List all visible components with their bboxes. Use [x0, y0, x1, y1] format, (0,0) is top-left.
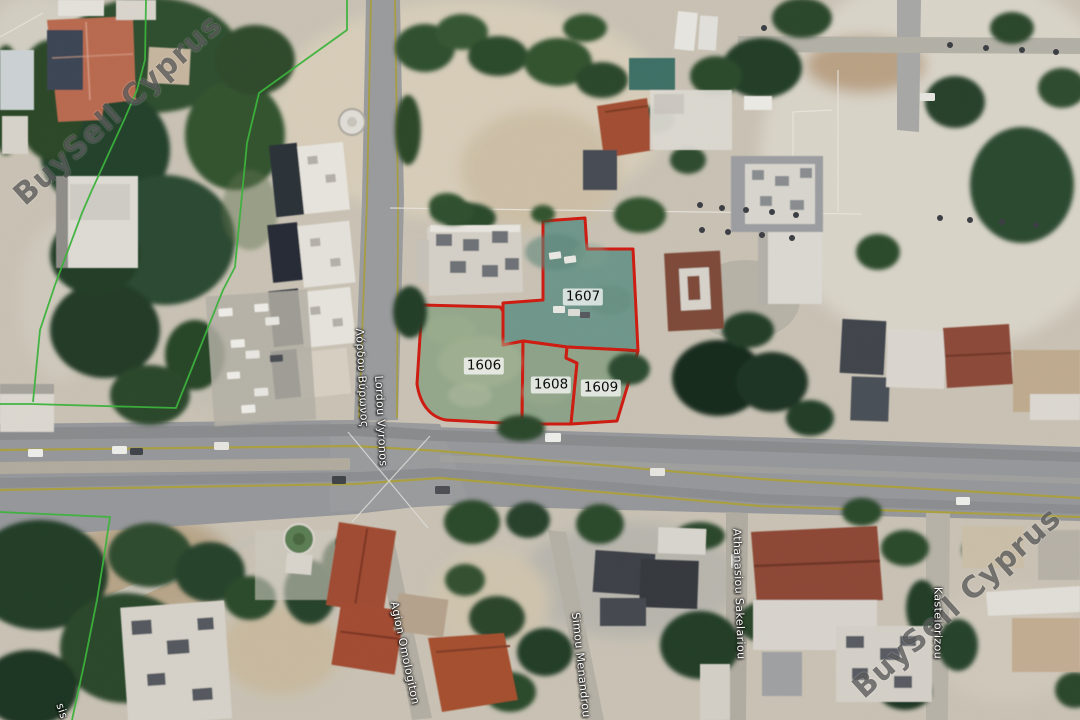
satellite-map[interactable]: BuySell Cyprus BuySell Cyprus 1606 1607 … — [0, 0, 1080, 720]
photo-grain-overlay — [0, 0, 1080, 720]
map-canvas — [0, 0, 1080, 720]
